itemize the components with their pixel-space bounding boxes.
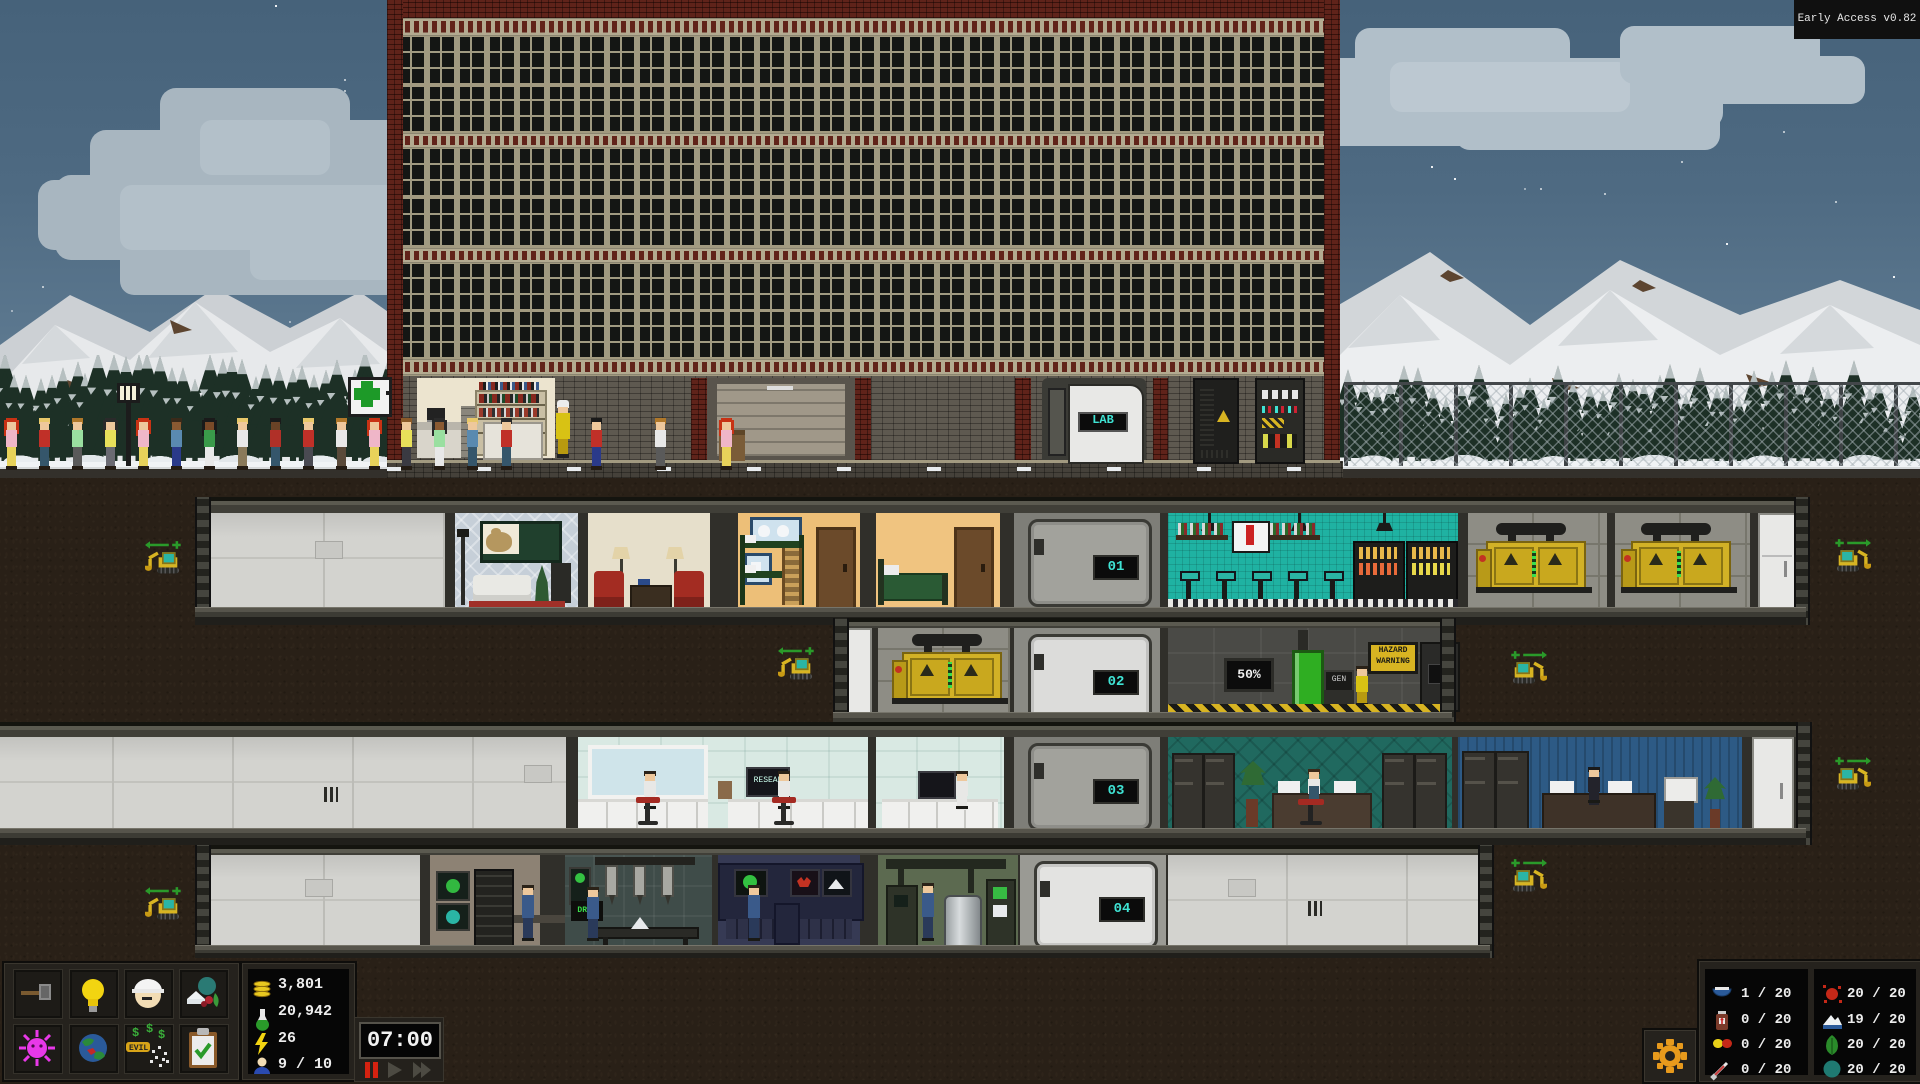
svg-text:$: $ — [132, 1026, 139, 1040]
svg-text:EVIL: EVIL — [129, 1044, 148, 1053]
svg-text:$: $ — [146, 1022, 153, 1036]
svg-text:$: $ — [158, 1028, 165, 1042]
